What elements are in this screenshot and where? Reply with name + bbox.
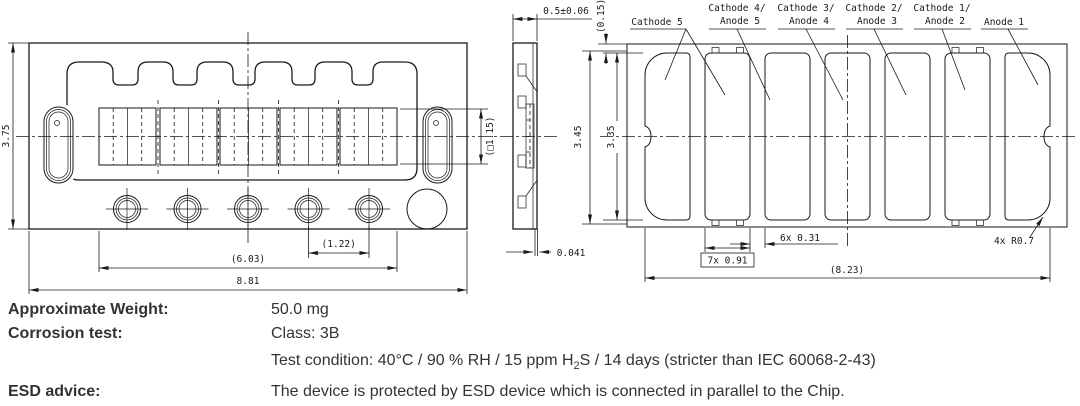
- svg-text:0.041: 0.041: [557, 248, 586, 259]
- test-condition-pre: Test condition: 40°C / 90 % RH / 15 ppm …: [271, 352, 574, 369]
- svg-text:(0.15): (0.15): [596, 0, 607, 33]
- svg-text:0.5±0.06: 0.5±0.06: [543, 6, 589, 17]
- svg-text:3.35: 3.35: [606, 126, 617, 149]
- terminal-bump: [518, 155, 526, 167]
- svg-text:8.81: 8.81: [237, 276, 260, 287]
- svg-text:6x 0.31: 6x 0.31: [780, 233, 820, 244]
- pin-label-cathode-3: Cathode 3/: [777, 3, 834, 14]
- dim-pad-height-outer: 3.45: [573, 51, 627, 224]
- pin-label-anode-2: Anode 2: [925, 16, 965, 27]
- dim-pad-gap: 6x 0.31: [730, 228, 838, 248]
- test-condition: Test condition: 40°C / 90 % RH / 15 ppm …: [271, 352, 876, 372]
- target-mark: [288, 188, 330, 230]
- dim-front-height: 3.75: [1, 43, 29, 229]
- corrosion-class: Class: 3B: [271, 325, 339, 343]
- datasheet-mechanical-drawing: 3.75 (□1.15) (1.22) (6.03) 8.81: [0, 0, 1080, 406]
- pad-view: Cathode 5 Cathode 4/ Anode 5 Cathode 3/ …: [573, 0, 1076, 282]
- pin-label-cathode-5: Cathode 5: [631, 17, 682, 28]
- weight-value: 50.0 mg: [271, 301, 329, 319]
- pad-view-outline: [627, 44, 1067, 227]
- svg-text:4x R0.7: 4x R0.7: [994, 236, 1034, 247]
- svg-text:3.75: 3.75: [1, 125, 12, 148]
- dim-thickness: 0.5±0.06: [513, 6, 592, 41]
- terminal-bump: [518, 196, 526, 208]
- target-mark: [167, 188, 209, 230]
- pin-leader-lines: [630, 29, 1038, 100]
- pin-label-cathode-1: Cathode 1/: [913, 3, 970, 14]
- svg-text:3.45: 3.45: [573, 126, 584, 149]
- front-view: 3.75 (□1.15) (1.22) (6.03) 8.81: [1, 32, 560, 294]
- index-circle: [407, 189, 447, 229]
- alignment-oval-right: [420, 103, 456, 187]
- svg-text:(□1.15): (□1.15): [485, 116, 496, 156]
- dim-pad-width: 7x 0.91: [701, 228, 754, 267]
- alignment-oval-left: [41, 103, 77, 187]
- target-mark: [348, 188, 390, 230]
- pin-label-anode-3: Anode 3: [857, 16, 897, 27]
- pin-label-anode-5: Anode 5: [720, 16, 760, 27]
- esd-label: ESD advice:: [8, 383, 100, 401]
- svg-text:(8.23): (8.23): [830, 265, 864, 276]
- pin-label-cathode-2: Cathode 2/: [845, 3, 902, 14]
- dim-corner-radius: 4x R0.7: [994, 217, 1043, 247]
- test-condition-post: S / 14 days (stricter than IEC 60068-2-4…: [580, 352, 876, 369]
- weight-label: Approximate Weight:: [8, 301, 169, 319]
- technical-drawing: 3.75 (□1.15) (1.22) (6.03) 8.81: [0, 0, 1080, 300]
- terminal-bump: [518, 64, 526, 76]
- corrosion-label: Corrosion test:: [8, 325, 123, 343]
- dim-lead-thickness: 0.041: [506, 248, 586, 259]
- pin-label-anode-4: Anode 4: [789, 16, 829, 27]
- pin-label-cathode-4: Cathode 4/: [708, 3, 765, 14]
- side-outline: [513, 43, 537, 229]
- terminal-bump: [518, 96, 526, 108]
- svg-text:7x 0.91: 7x 0.91: [707, 256, 747, 267]
- svg-text:(1.22): (1.22): [322, 239, 356, 250]
- esd-text: The device is protected by ESD device wh…: [271, 383, 845, 401]
- package-body: [67, 62, 417, 180]
- dim-mark-pitch: (1.22): [309, 226, 370, 258]
- pin-label-anode-1: Anode 1: [984, 17, 1024, 28]
- dim-pad-offset: (0.15): [596, 0, 627, 64]
- target-mark: [106, 188, 148, 230]
- svg-text:(6.03): (6.03): [231, 254, 265, 265]
